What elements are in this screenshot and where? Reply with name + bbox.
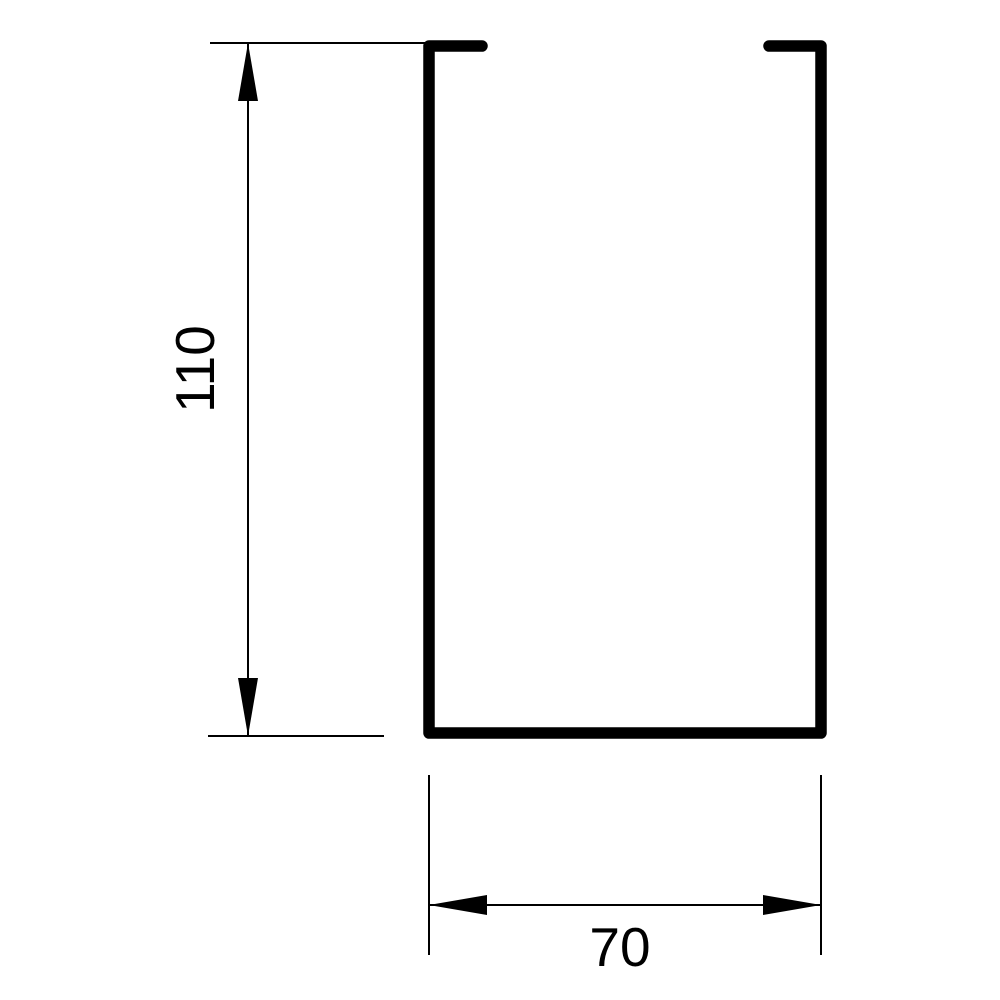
arrowhead-down-icon [238,678,258,736]
dimension-width: 70 [429,775,821,978]
arrowhead-up-icon [238,43,258,101]
arrowhead-left-icon [429,895,487,915]
technical-drawing: 110 70 [0,0,1000,1000]
width-dimension-label: 70 [589,916,650,978]
channel-profile-outline [429,46,821,733]
drawing-area: 110 70 [0,0,1000,1000]
height-dimension-label: 110 [164,325,226,413]
arrowhead-right-icon [763,895,821,915]
dimension-height: 110 [164,43,429,736]
